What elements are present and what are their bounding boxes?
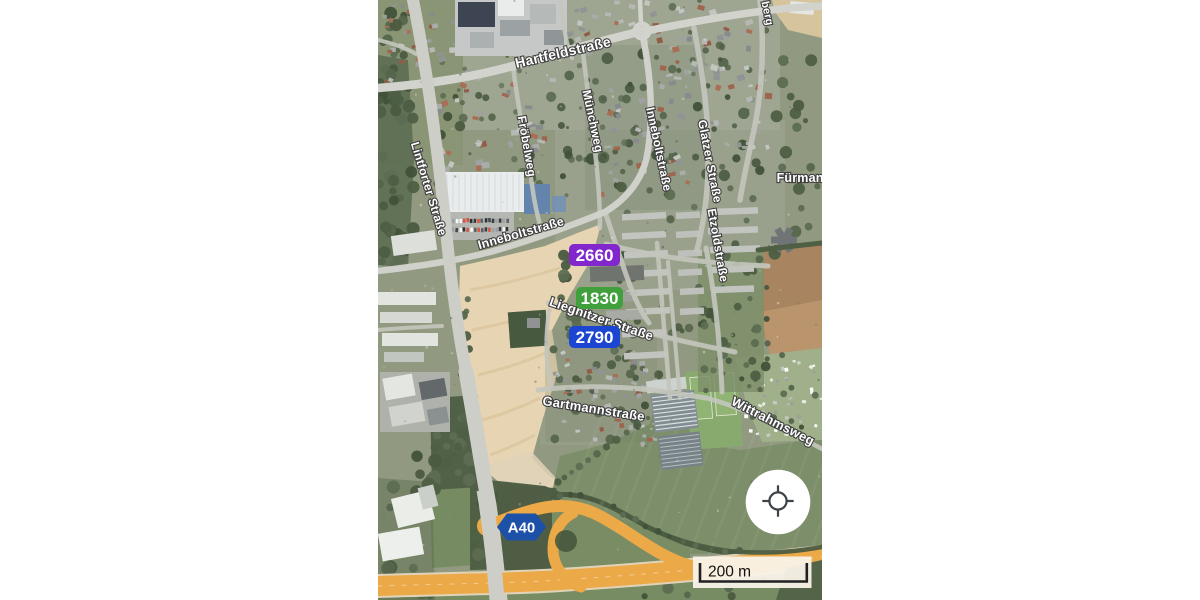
- svg-text:2790: 2790: [576, 328, 614, 347]
- svg-text:1830: 1830: [581, 289, 619, 308]
- svg-text:200 m: 200 m: [708, 564, 751, 581]
- svg-text:A40: A40: [508, 520, 536, 537]
- svg-text:2660: 2660: [576, 246, 614, 265]
